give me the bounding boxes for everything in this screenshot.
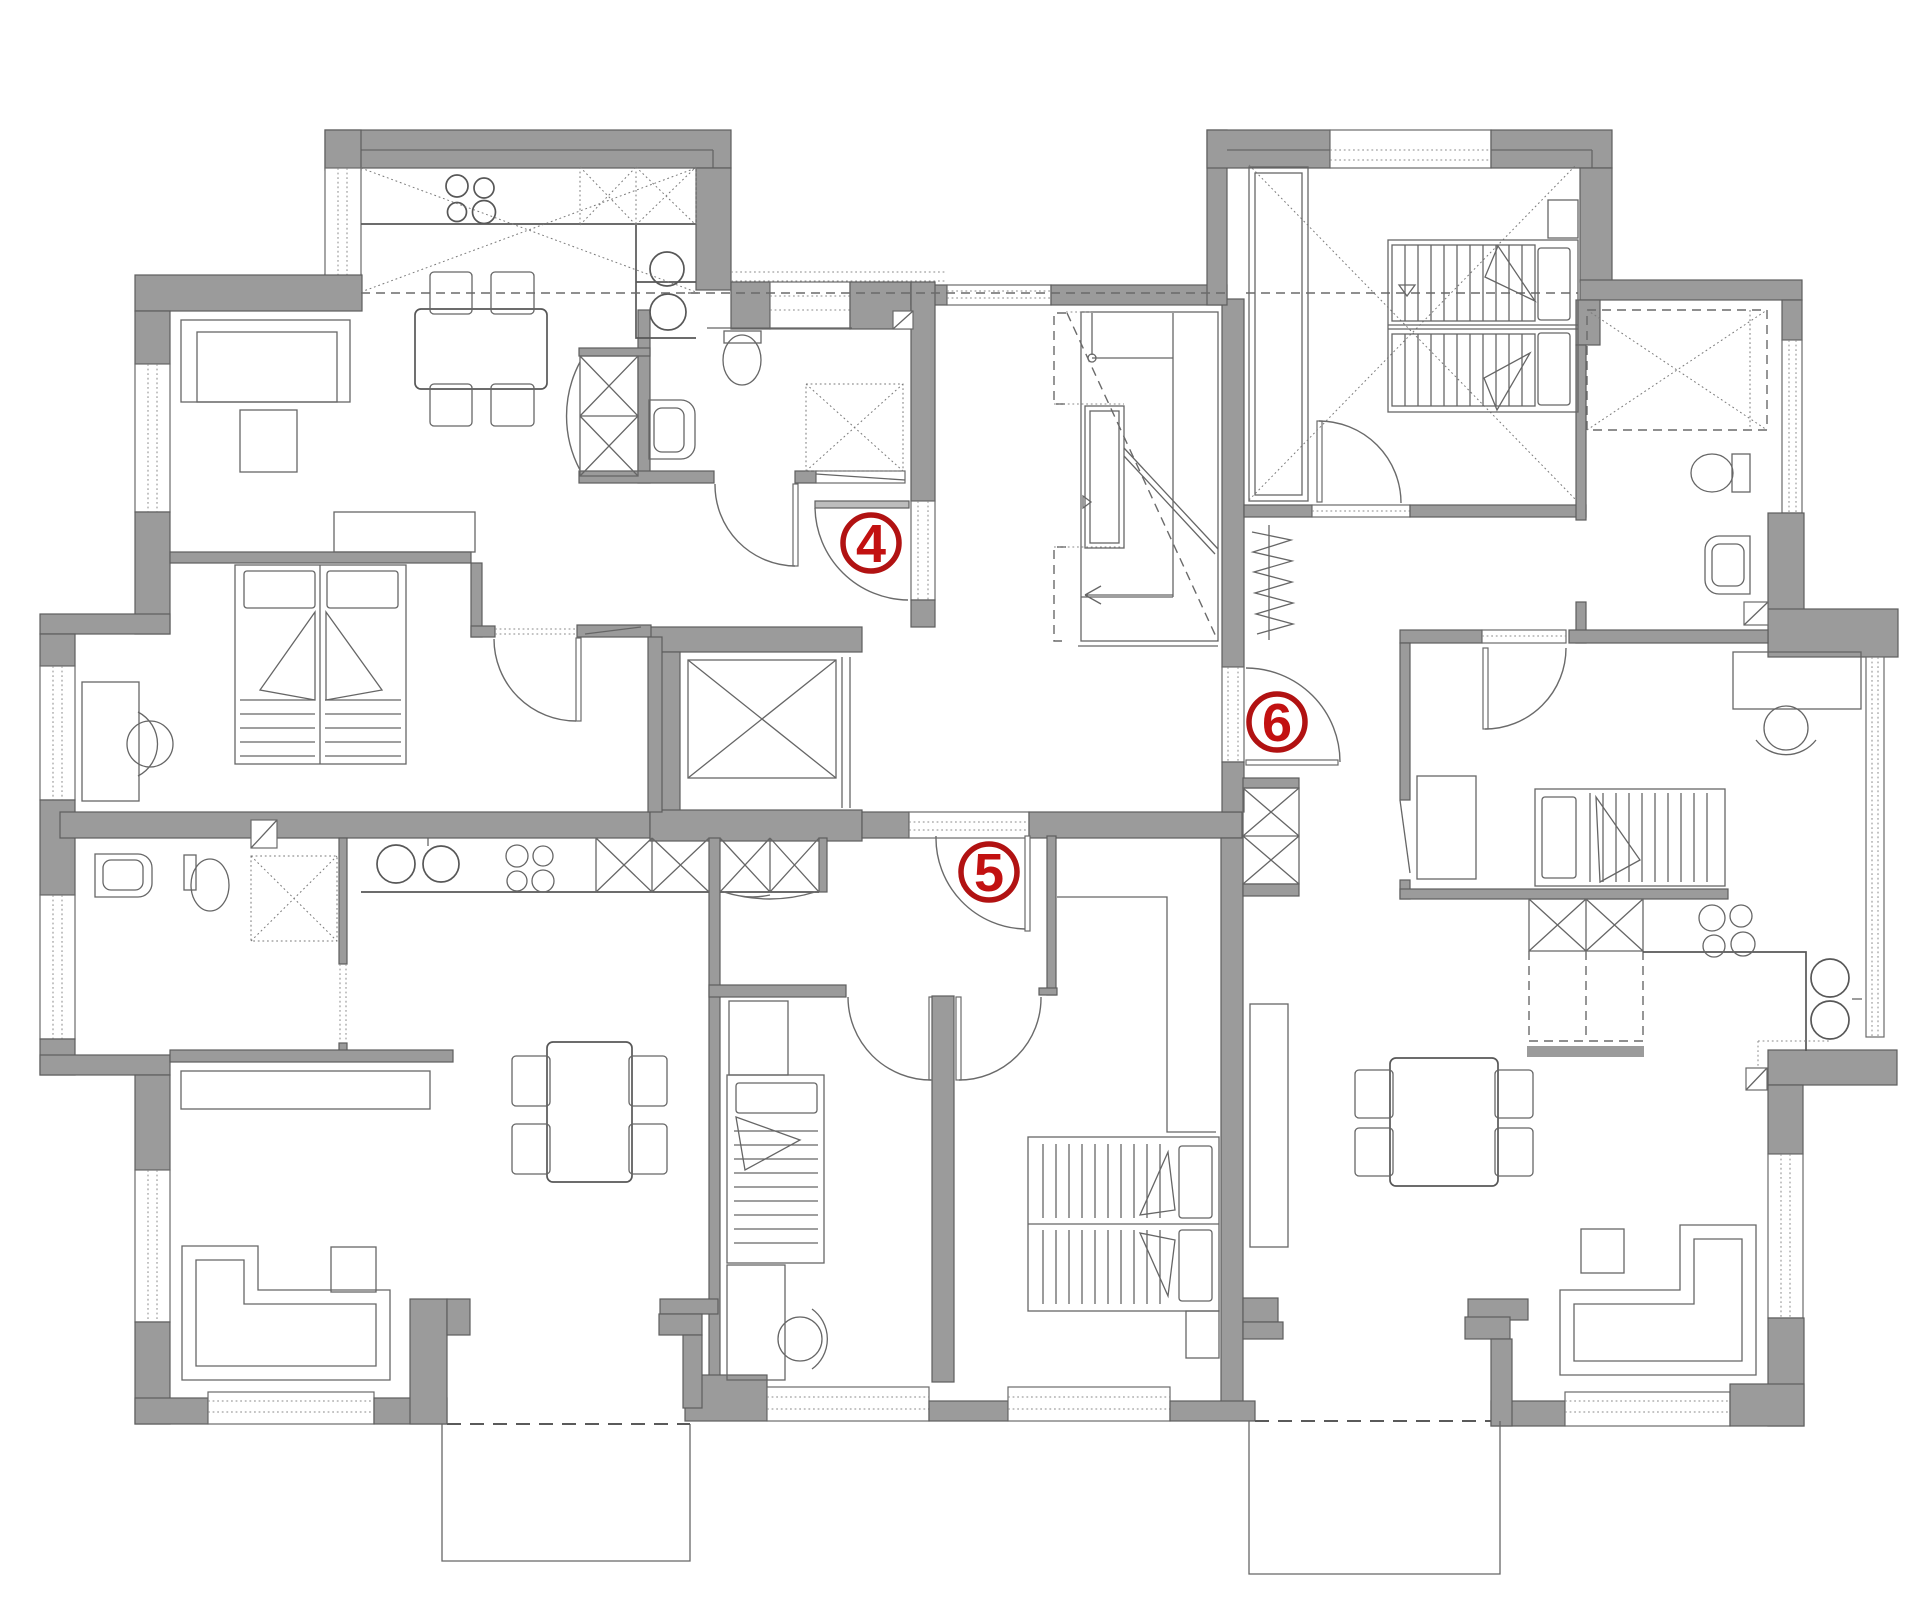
svg-text:5: 5 (974, 843, 1004, 903)
svg-text:6: 6 (1262, 693, 1292, 753)
svg-text:4: 4 (856, 514, 886, 574)
